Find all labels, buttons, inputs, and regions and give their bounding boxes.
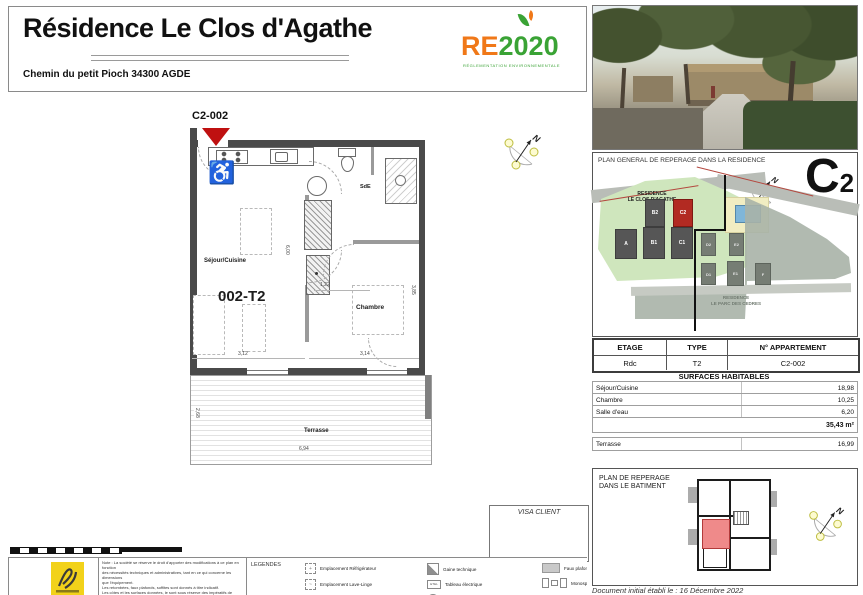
legend-label: Tableau électrique [445, 582, 482, 587]
scale-bar-dashes [10, 547, 122, 554]
promoter-logo [51, 562, 84, 595]
legend-label: Gaine technique [443, 567, 476, 572]
photo-gravel [593, 108, 703, 149]
phase-line [694, 229, 726, 231]
building-e2: E2 [729, 233, 744, 256]
wall [190, 368, 247, 375]
sink-bowl [275, 152, 288, 162]
header-etage: ETAGE [594, 340, 667, 355]
legend-label: Emplacement Réfrigérateur [320, 566, 376, 571]
monosplit-icon [542, 578, 567, 588]
wheelchair-icon: ♿ [208, 160, 235, 186]
legend-item: + Emplacement Réfrigérateur [305, 563, 415, 574]
wall [407, 368, 425, 375]
legend-item: Faux plafond [542, 563, 587, 573]
zone-b-label: RESIDENCE LE PARC DES CEDRES [691, 295, 781, 306]
electrical-panel-icon: ETEL [427, 580, 441, 589]
dining-table [242, 304, 266, 352]
dim-line [314, 290, 370, 291]
legend-item: Monosplit [542, 578, 587, 588]
note-line: Les côtes et les surfaces données, le so… [102, 590, 250, 595]
surface-value: 18,98 [742, 385, 857, 392]
header-num: N° APPARTEMENT [728, 340, 858, 355]
header-type: TYPE [667, 340, 728, 355]
value-etage: Rdc [594, 356, 667, 370]
compass-n-label: N [531, 132, 542, 144]
toilet-bowl [341, 156, 354, 172]
surfaces-table: Séjour/Cuisine 18,98 Chambre 10,25 Salle… [592, 381, 856, 461]
door-arc [368, 338, 397, 367]
legend-label: Emplacement Lave-Linge [320, 582, 372, 587]
mini-entry [703, 549, 727, 568]
building-b1: B1 [643, 227, 665, 259]
mini-building-plan [697, 479, 775, 573]
dim-chambre-width: 3,14 [360, 351, 370, 357]
page-title: Résidence Le Clos d'Agathe [23, 13, 372, 44]
unit-marker-label: C2-002 [192, 110, 228, 122]
legend-col3: Faux plafond Monosplit [542, 563, 587, 593]
surfaces-title: SURFACES HABITABLES [592, 372, 856, 381]
terrace-value: 16,99 [742, 441, 857, 448]
scale-bar [10, 546, 182, 554]
dim-sejour-height: 6,00 [284, 245, 290, 255]
value-type: T2 [667, 356, 728, 370]
fridge-location-icon: + [305, 563, 316, 574]
kitchen-island [240, 208, 272, 255]
surface-value: 10,25 [742, 397, 857, 404]
building-d1: D1 [701, 263, 716, 285]
title-rule [91, 55, 349, 61]
entrance-arrow-icon [202, 128, 230, 146]
photo-person [711, 86, 715, 98]
building-e1: E1 [727, 261, 744, 286]
legend-col2: Gaine technique ETEL Tableau électrique … [427, 563, 537, 595]
terrace: Terrasse 6,94 2,68 [190, 375, 432, 465]
building-plan-box: PLAN DE REPERAGE DANS LE BATIMENT [592, 468, 858, 586]
info-table: ETAGE TYPE N° APPARTEMENT Rdc T2 C2-002 [592, 338, 860, 373]
phase-line [724, 175, 726, 231]
residence-plan-box: PLAN GENERAL DE REPERAGE DANS LA RESIDEN… [592, 152, 858, 337]
shower-icon [385, 158, 417, 204]
mini-stairs [733, 511, 749, 525]
dim-line [309, 358, 419, 359]
building-plan-title: PLAN DE REPERAGE DANS LE BATIMENT [599, 475, 670, 491]
legend-item: ETEL Tableau électrique [427, 580, 537, 589]
building-f: F [755, 263, 771, 285]
building-b2: B2 [645, 199, 665, 227]
unit-number: 002-T2 [218, 288, 266, 305]
photo-trees [593, 5, 857, 96]
scale-bar-solid [120, 547, 182, 552]
room-label-sde: SdE [360, 184, 371, 190]
legend-cell: LEGENDES + Emplacement Réfrigérateur ~ E… [246, 557, 587, 595]
leaf-icon [526, 10, 536, 21]
sink-icon [270, 149, 298, 164]
terrace-label: Terrasse [593, 438, 742, 450]
washing-machine-location-icon: ~ [305, 579, 316, 590]
technical-shaft [304, 200, 332, 250]
leaf-icon [518, 12, 530, 28]
partition [353, 240, 419, 244]
terrace-wall [425, 375, 431, 419]
room-label-terrasse: Terrasse [304, 428, 329, 434]
dim-hall-width: 1,22 [320, 282, 330, 288]
residence-plan-title: PLAN GENERAL DE REPERAGE DANS LA RESIDEN… [598, 157, 765, 164]
re2020-logo: RE2020 RÉGLEMENTATION ENVIRONNEMENTALE [461, 11, 581, 87]
residence-photo [592, 5, 858, 150]
surface-total-value: 35,43 m² [741, 422, 857, 429]
wall [288, 368, 367, 375]
legend-item: ~ Emplacement Lave-Linge [305, 579, 415, 590]
promoter-logo-cell [8, 557, 100, 595]
technical-duct-icon [427, 563, 439, 575]
re2020-re: RE [461, 31, 499, 61]
legend-item: Gaine technique [427, 563, 537, 575]
room-label-sejour: Séjour/Cuisine [204, 258, 246, 264]
building-c2-highlighted: C2 [673, 199, 693, 227]
phase-line [694, 229, 696, 331]
legend-label: Faux plafond [564, 566, 587, 571]
building-d2: D2 [701, 233, 716, 256]
surface-total-spacer [593, 418, 741, 432]
false-ceiling-icon [542, 563, 560, 573]
wall [190, 140, 198, 147]
floor-plan: C2-002 [8, 100, 588, 545]
terrace-row: Terrasse 16,99 [592, 437, 858, 451]
site-map: RESIDENCE LE CLOS D'AGATHE A B1 C1 B2 C2… [595, 167, 855, 333]
compass-icon: N [498, 128, 548, 178]
dim-sejour-width: 3,12 [238, 351, 248, 357]
door-arc [309, 250, 342, 283]
wall [228, 140, 425, 147]
note-line: des nécessités techniques et administrat… [102, 570, 250, 580]
zone-b-line2: LE PARC DES CEDRES [691, 301, 781, 307]
address: Chemin du petit Pioch 34300 AGDE [23, 69, 190, 80]
header-box: Résidence Le Clos d'Agathe Chemin du pet… [8, 6, 587, 92]
mini-wall [729, 537, 769, 539]
compass-n-label: N [834, 505, 845, 517]
value-num: C2-002 [728, 356, 858, 370]
legend-col1: + Emplacement Réfrigérateur ~ Emplacemen… [305, 563, 415, 595]
visa-client-label: VISA CLIENT [490, 506, 588, 516]
dim-terrace-height: 2,68 [194, 408, 200, 418]
room-label-chambre: Chambre [356, 304, 384, 311]
re2020-year: 2020 [499, 31, 559, 61]
shower-drain [395, 175, 406, 186]
building-c1: C1 [671, 227, 693, 259]
photo-hedge [743, 101, 857, 149]
legend-label: Monosplit [571, 581, 587, 586]
building-plan-title-line1: PLAN DE REPERAGE [599, 475, 670, 483]
mini-wall [729, 481, 731, 517]
dim-terrace-width: 6,94 [299, 446, 309, 452]
bottom-strip: Note : La société se réserve le droit d'… [8, 557, 587, 595]
note-cell: Note : La société se réserve le droit d'… [98, 557, 254, 595]
surface-value: 6,20 [742, 409, 857, 416]
document-date: Document initial établi le : 16 Décembre… [592, 586, 743, 595]
mini-plan-outline [697, 479, 771, 571]
visa-client-box: VISA CLIENT [489, 505, 589, 562]
compass-icon: N [803, 501, 851, 549]
plan-sheet: Résidence Le Clos d'Agathe Chemin du pet… [0, 0, 863, 595]
dim-chambre-height: 3,85 [410, 285, 416, 295]
note-line: Note : La société se réserve le droit d'… [102, 560, 250, 570]
re2020-subtitle: RÉGLEMENTATION ENVIRONNEMENTALE [463, 63, 560, 68]
building-a: A [615, 229, 637, 259]
promoter-logo-glyph [51, 562, 84, 595]
partition [371, 147, 374, 175]
legend-title: LEGENDES [251, 562, 281, 568]
building-plan-title-line2: DANS LE BATIMENT [599, 483, 670, 491]
mini-highlighted-unit [702, 519, 730, 549]
door-arc [309, 161, 342, 194]
dim-line [192, 358, 305, 359]
wall [419, 140, 425, 375]
surface-total-row: 35,43 m² [592, 417, 858, 433]
